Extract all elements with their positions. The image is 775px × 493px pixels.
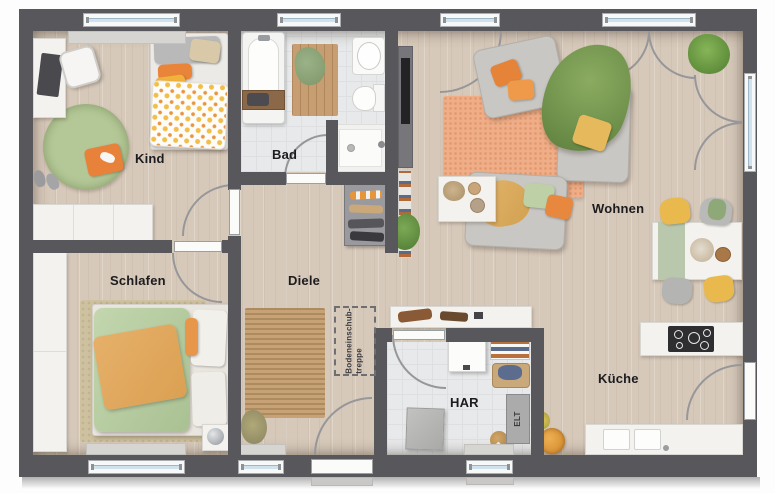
washbasin-bowl — [357, 42, 381, 70]
flower-vase — [690, 238, 714, 262]
shelf-item-tray — [440, 311, 469, 322]
kind-door-leaf — [229, 189, 240, 235]
pampas-plant — [443, 181, 465, 201]
bed-throw-orange — [92, 323, 188, 410]
bed-pillow-orange-small — [185, 318, 198, 356]
sink-basin-1 — [603, 429, 630, 450]
burner-2 — [688, 332, 700, 344]
shoes-row-4 — [350, 231, 384, 242]
wall-exterior-left — [19, 9, 33, 477]
bed-pillow-2 — [191, 371, 227, 426]
window-har — [466, 460, 513, 474]
tv-screen — [401, 58, 410, 124]
entrance-door-leaf — [311, 459, 373, 474]
shower-tray — [334, 124, 387, 172]
shelf-item-small — [474, 312, 483, 319]
caddy-towel — [247, 93, 269, 106]
shower-drain — [347, 144, 355, 152]
wall-har-top-b — [446, 328, 534, 342]
elt-label: ELT — [513, 411, 523, 426]
dining-chair-yellow-top — [659, 197, 692, 226]
toilet-bowl — [352, 86, 376, 111]
sofa-pillow-orange-2 — [507, 79, 535, 101]
room-label-kueche: Küche — [598, 371, 639, 386]
laundry-clothes — [498, 365, 522, 380]
kitchen-door-leaf — [744, 362, 756, 420]
washing-machine-knob — [463, 365, 470, 370]
dining-chair-gray-bottom — [661, 277, 693, 305]
shoes-row-1 — [350, 190, 382, 200]
window-diele — [238, 460, 284, 474]
burner-3 — [703, 329, 711, 337]
kind-pillow-beige — [189, 38, 222, 64]
har-window-step — [466, 477, 514, 485]
window-wohnen-2 — [602, 13, 696, 27]
shoes-row-2 — [349, 204, 383, 213]
wall-bad-south-a — [241, 172, 286, 185]
har-window-sill — [464, 444, 514, 455]
shoes-row-3 — [348, 218, 384, 228]
wall-shower-left — [326, 120, 338, 185]
har-door-leaf — [393, 330, 445, 340]
loft-ladder-outline: Bodeneinschub- treppe — [334, 306, 376, 376]
building-shadow — [22, 477, 760, 489]
entrance-step — [311, 477, 373, 486]
loft-ladder-label: Bodeneinschub- treppe — [345, 308, 366, 373]
nightstand-lamp — [207, 428, 224, 445]
diele-window-sill — [236, 444, 286, 455]
room-label-schlafen: Schlafen — [110, 273, 166, 288]
room-label-wohnen: Wohnen — [592, 201, 644, 216]
table-runner — [658, 222, 685, 280]
storage-box — [405, 407, 444, 450]
shower-head — [378, 141, 385, 148]
wall-schlafen-diele — [228, 236, 241, 455]
burner-5 — [676, 342, 683, 349]
kind-duvet-dotted — [149, 80, 228, 150]
burner-1 — [674, 330, 683, 339]
nut-bowl — [715, 247, 731, 262]
schlafen-window-sill — [86, 443, 186, 455]
wall-har-top-a — [374, 328, 392, 342]
corner-plant — [688, 34, 730, 74]
diele-jute-rug — [245, 308, 325, 418]
kind-sideboard — [33, 204, 153, 241]
window-bad — [277, 13, 341, 27]
kind-window-sill — [68, 31, 186, 44]
table-bowl-2 — [470, 198, 485, 213]
window-kind — [83, 13, 180, 27]
bad-door-leaf — [286, 173, 326, 184]
wall-bad-wohnen — [385, 31, 398, 253]
sink-faucet — [663, 445, 669, 451]
wall-har-kueche — [531, 328, 544, 455]
burner-4 — [700, 341, 709, 350]
room-label-har: HAR — [450, 395, 479, 410]
window-wohnen-1 — [440, 13, 500, 27]
table-bowl-1 — [468, 182, 481, 195]
window-schlafen — [88, 460, 185, 474]
elt-cabinet: ELT — [506, 394, 530, 444]
wall-kind-schlafen-a — [33, 240, 172, 253]
terrace-door — [744, 73, 756, 172]
sink-basin-2 — [634, 429, 661, 450]
floorplan-canvas: ELT Bodeneinschub- treppe — [0, 0, 775, 493]
wall-kind-schlafen-b — [222, 240, 241, 253]
room-label-diele: Diele — [288, 273, 320, 288]
wardrobe — [33, 252, 67, 452]
room-label-kind: Kind — [135, 151, 165, 166]
room-label-bad: Bad — [272, 147, 297, 162]
bathtub-faucet — [258, 35, 270, 41]
wall-kind-bad — [228, 31, 241, 190]
schlafen-door-leaf — [174, 241, 222, 252]
dried-plant — [241, 410, 267, 444]
